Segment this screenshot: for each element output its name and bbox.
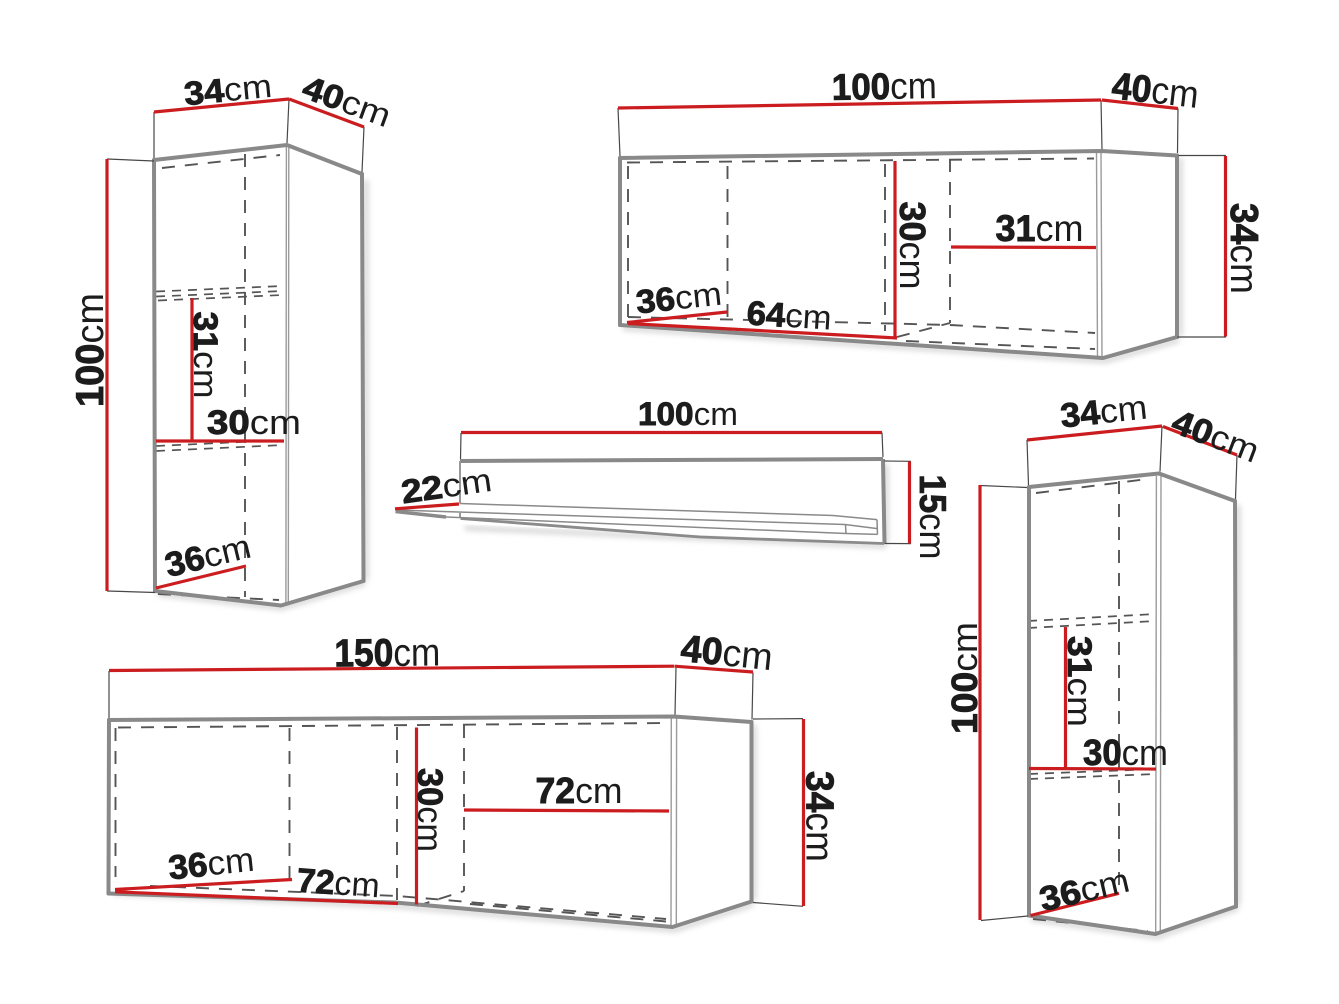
svg-text:72cm: 72cm <box>296 862 381 906</box>
svg-text:31cm: 31cm <box>1060 636 1098 727</box>
svg-text:72cm: 72cm <box>536 770 623 811</box>
svg-text:64cm: 64cm <box>746 294 833 337</box>
svg-text:30cm: 30cm <box>410 768 449 852</box>
svg-text:34cm: 34cm <box>1222 203 1265 294</box>
svg-text:100cm: 100cm <box>944 622 985 734</box>
svg-text:34cm: 34cm <box>798 771 841 862</box>
svg-text:100cm: 100cm <box>831 65 937 108</box>
svg-text:30cm: 30cm <box>207 404 301 442</box>
svg-text:100cm: 100cm <box>638 396 738 432</box>
svg-text:30cm: 30cm <box>1083 732 1168 773</box>
svg-text:31cm: 31cm <box>996 208 1084 249</box>
svg-text:150cm: 150cm <box>334 632 440 676</box>
svg-text:15cm: 15cm <box>912 475 953 560</box>
svg-text:100cm: 100cm <box>69 293 112 407</box>
svg-text:31cm: 31cm <box>186 312 224 399</box>
svg-text:30cm: 30cm <box>892 202 933 290</box>
